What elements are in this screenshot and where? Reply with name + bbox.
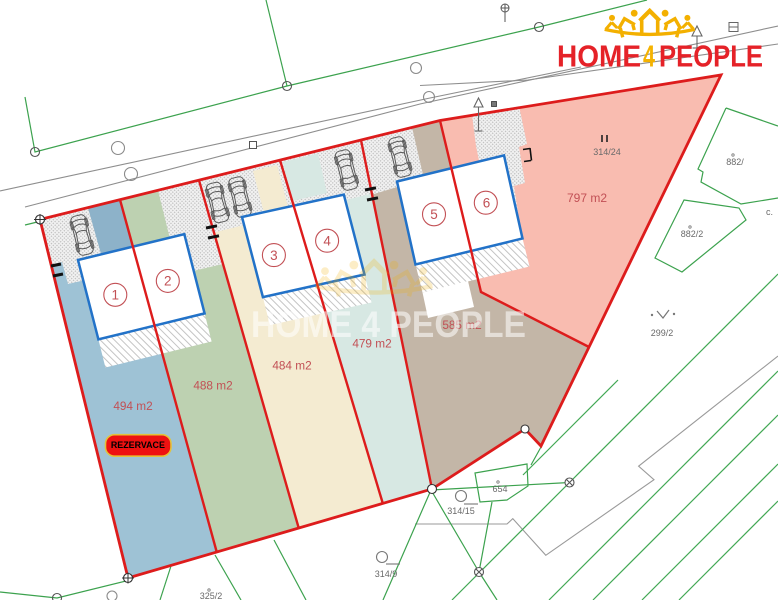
svg-text:654: 654 [492,484,507,494]
svg-text:314/9: 314/9 [375,569,398,579]
svg-text:488 m2: 488 m2 [193,379,232,393]
svg-text:314/24: 314/24 [593,147,621,157]
svg-text:6: 6 [483,196,491,211]
svg-text:494 m2: 494 m2 [113,399,152,413]
svg-text:314/15: 314/15 [447,506,475,516]
svg-text:4: 4 [323,234,331,249]
svg-text:484 m2: 484 m2 [272,359,311,373]
svg-text:299/2: 299/2 [651,328,674,338]
svg-text:882/2: 882/2 [681,229,704,239]
svg-text:882/: 882/ [726,157,744,167]
svg-text:c.: c. [766,207,773,217]
svg-text:1: 1 [112,288,120,303]
svg-text:4: 4 [643,39,656,74]
svg-text:3: 3 [270,248,278,263]
svg-text:2: 2 [164,274,172,289]
svg-text:HOME 4 PEOPLE: HOME 4 PEOPLE [251,304,526,345]
svg-text:797 m2: 797 m2 [567,191,607,205]
svg-text:REZERVACE: REZERVACE [111,440,165,451]
svg-text:HOME: HOME [557,39,641,74]
svg-text:5: 5 [430,207,438,222]
svg-text:325/2: 325/2 [200,591,223,600]
svg-text:PEOPLE: PEOPLE [659,39,763,74]
